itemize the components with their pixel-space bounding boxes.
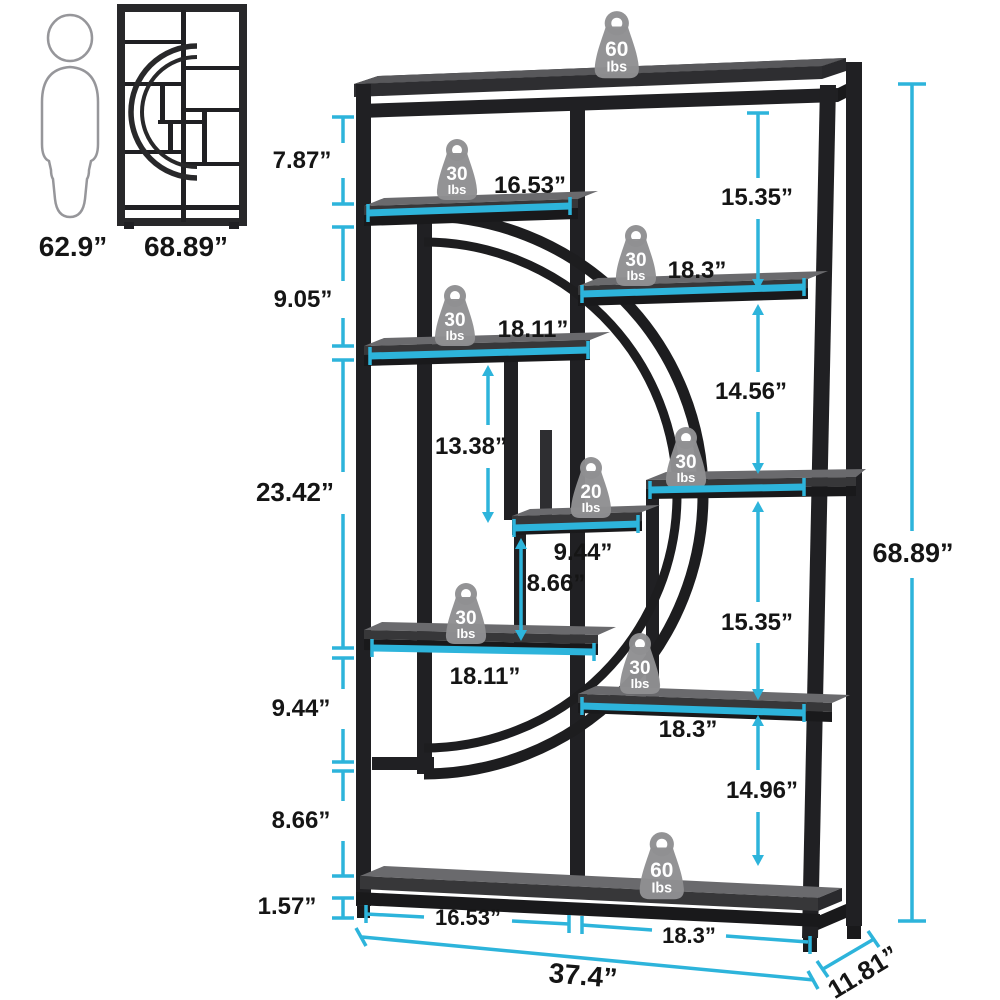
label-right-gap-3: 15.35” [721,609,793,636]
label-shelf-left-mid: 18.11” [498,316,569,343]
svg-text:Ibs: Ibs [651,881,672,897]
svg-text:60: 60 [605,38,628,61]
label-shelf-left-lower: 18.11” [450,663,521,690]
label-clearance: 13.38” [435,433,507,460]
svg-text:60: 60 [650,859,673,882]
weight-badge-bottom: 60 Ibs [640,832,684,899]
label-right-gap-2: 14.56” [715,378,787,405]
label-right-gap-1: 15.35” [721,184,793,211]
mini-bookshelf-icon [121,8,243,229]
weight-badge: 30 Ibs [435,285,475,346]
human-silhouette-icon [42,15,98,217]
label-shelf-right-lower: 18.3” [659,716,718,743]
label-shelf-right-upper: 18.3” [668,257,727,284]
label-right-gap-4: 14.96” [726,777,798,804]
weight-badge-top: 60 Ibs [595,11,639,78]
label-total-height: 68.89” [872,538,953,568]
svg-text:Ibs: Ibs [606,60,627,76]
svg-text:Ibs: Ibs [631,676,650,691]
label-thumb-height: 68.89” [144,231,228,262]
label-total-width: 37.4” [548,957,619,994]
svg-text:Ibs: Ibs [677,470,696,485]
label-gap-3: 23.42” [256,477,334,507]
label-depth: 11.81” [822,939,903,1000]
weight-badge: 30 Ibs [616,225,656,286]
label-gap-5: 8.66” [272,807,331,834]
label-gap-1: 7.87” [273,147,332,174]
dimension-diagram: 60 Ibs 30 Ibs 30 Ibs 30 Ibs 30 Ibs [0,0,1000,1000]
svg-text:Ibs: Ibs [627,268,646,283]
label-gap-2: 9.05” [274,286,333,313]
weight-badge: 30 Ibs [437,139,477,200]
svg-text:Ibs: Ibs [446,328,465,343]
label-middle-gap: 8.66” [527,570,586,597]
label-bottom-left: 16.53” [435,905,501,930]
label-gap-6: 1.57” [258,893,317,920]
weight-badge: 30 Ibs [446,583,486,644]
label-person-height: 62.9” [39,231,108,262]
diagram-canvas: 60 Ibs 30 Ibs 30 Ibs 30 Ibs 30 Ibs [0,0,1000,1000]
svg-text:Ibs: Ibs [448,182,467,197]
label-shelf-middle: 9.44” [554,539,613,566]
label-bottom-right: 18.3” [662,923,716,948]
label-shelf-top-left: 16.53” [494,172,566,199]
label-gap-4: 9.44” [272,695,331,722]
svg-text:Ibs: Ibs [582,500,601,515]
svg-text:Ibs: Ibs [457,626,476,641]
